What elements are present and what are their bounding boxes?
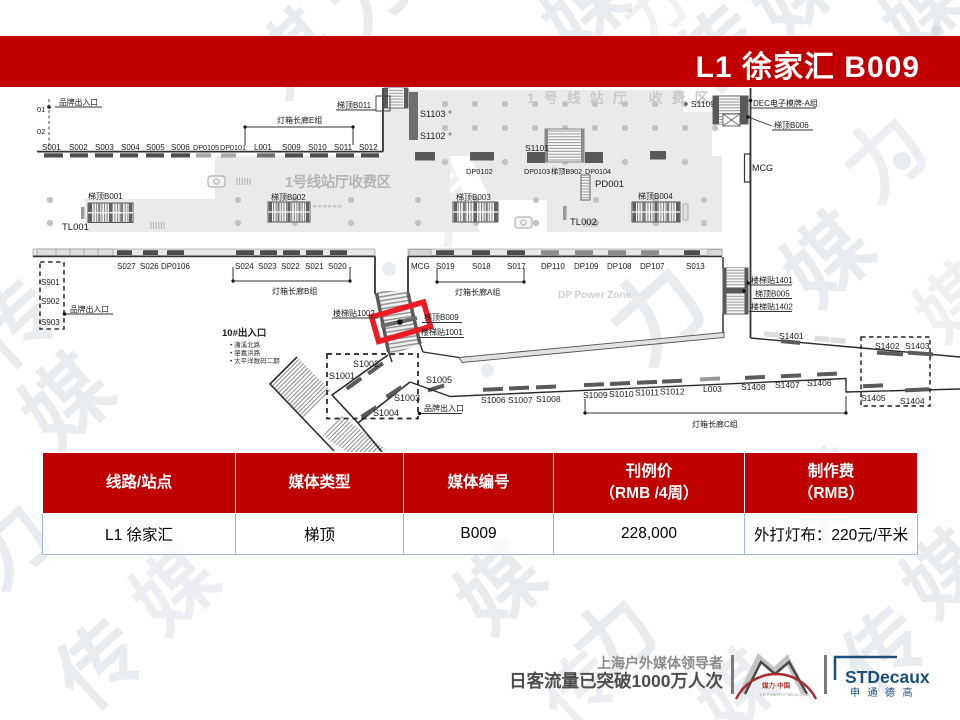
svg-text:• 肇嘉浜路: • 肇嘉浜路 (230, 348, 261, 357)
svg-text:S009: S009 (282, 143, 301, 152)
svg-text:楼梯贴1002: 楼梯贴1002 (333, 308, 375, 318)
svg-text:DP108: DP108 (607, 262, 632, 271)
svg-text:S1103: S1103 (420, 109, 445, 119)
svg-text:梯顶B011: 梯顶B011 (337, 100, 372, 110)
svg-text:L001: L001 (254, 143, 272, 152)
svg-text:02: 02 (37, 127, 45, 136)
svg-text:品牌出入口: 品牌出入口 (70, 304, 109, 314)
svg-text:S1408: S1408 (741, 382, 766, 392)
svg-text:S013: S013 (686, 262, 705, 271)
svg-text:10#出入口: 10#出入口 (222, 327, 266, 339)
svg-text:媒力·中国: 媒力·中国 (762, 681, 791, 690)
svg-text:S004: S004 (121, 143, 140, 152)
svg-text:灯箱长廊A组: 灯箱长廊A组 (455, 287, 500, 297)
svg-text:DP0101: DP0101 (220, 143, 246, 152)
svg-text:STDecaux: STDecaux (845, 667, 930, 687)
svg-text:S002: S002 (69, 143, 88, 152)
svg-text:THE POWER OF MEDIA CHINA: THE POWER OF MEDIA CHINA (759, 693, 810, 697)
svg-text:S005: S005 (146, 143, 165, 152)
svg-text:梯顶B006: 梯顶B006 (774, 120, 809, 130)
svg-text:S1007: S1007 (508, 395, 533, 405)
svg-text:楼梯贴1401: 楼梯贴1401 (751, 275, 793, 285)
svg-text:DP109: DP109 (574, 262, 599, 271)
svg-text:S1406: S1406 (807, 378, 832, 388)
svg-text:S1012: S1012 (660, 387, 685, 397)
svg-text:灯箱长廊B组: 灯箱长廊B组 (272, 286, 317, 296)
svg-text:DP0102: DP0102 (466, 167, 493, 176)
svg-text:S1011: S1011 (635, 388, 659, 398)
svg-text:TL001: TL001 (62, 222, 89, 233)
svg-text:梯顶B002: 梯顶B002 (271, 192, 306, 202)
svg-text:S001: S001 (42, 143, 61, 152)
svg-text:1号线站厅收费区: 1号线站厅收费区 (285, 173, 392, 191)
svg-text:S011: S011 (334, 143, 353, 152)
svg-text:DP0105: DP0105 (193, 143, 219, 152)
svg-text:S026: S026 (140, 262, 159, 271)
svg-text:品牌出入口: 品牌出入口 (424, 403, 464, 413)
svg-text:灯箱长廊E组: 灯箱长廊E组 (277, 115, 322, 125)
svg-text:S1002: S1002 (353, 359, 379, 369)
svg-text:S1401: S1401 (779, 331, 804, 341)
svg-text:品牌出入口: 品牌出入口 (59, 97, 98, 107)
svg-text:1号线站厅 收费区: 1号线站厅 收费区 (527, 90, 718, 106)
svg-text:DP Power Zone: DP Power Zone (558, 290, 632, 301)
svg-text:S1005: S1005 (426, 375, 452, 385)
svg-text:S020: S020 (328, 262, 347, 271)
svg-text:S1109: S1109 (691, 99, 715, 109)
svg-text:DP107: DP107 (640, 262, 665, 271)
svg-text:S901: S901 (41, 278, 60, 287)
svg-text:TL002: TL002 (570, 217, 597, 228)
svg-text:S024: S024 (235, 262, 254, 271)
svg-text:S1008: S1008 (536, 394, 561, 404)
svg-text:S017: S017 (507, 262, 526, 271)
svg-text:楼梯贴1001: 楼梯贴1001 (421, 327, 463, 337)
svg-text:S1010: S1010 (609, 389, 634, 399)
svg-text:梯顶B902: 梯顶B902 (551, 167, 582, 176)
svg-text:S1102: S1102 (420, 131, 445, 141)
svg-text:S1009: S1009 (583, 390, 608, 400)
svg-text:S1101: S1101 (525, 143, 549, 153)
svg-text:PD001: PD001 (595, 179, 624, 190)
svg-text:DP0103: DP0103 (524, 167, 550, 176)
svg-text:L003: L003 (703, 384, 722, 394)
svg-text:S1004: S1004 (373, 408, 399, 418)
svg-text:S1404: S1404 (900, 396, 925, 406)
svg-text:S1407: S1407 (775, 380, 800, 390)
svg-text:S027: S027 (117, 262, 136, 271)
svg-text:MCG: MCG (752, 163, 773, 173)
svg-text:• 太平洋数码二期: • 太平洋数码二期 (230, 356, 280, 365)
svg-text:梯顶B009: 梯顶B009 (424, 312, 459, 322)
svg-text:S1402: S1402 (875, 341, 900, 351)
svg-text:S003: S003 (95, 143, 114, 152)
svg-text:S1003: S1003 (394, 393, 420, 403)
svg-text:S006: S006 (171, 143, 190, 152)
svg-text:申通德高: 申通德高 (850, 686, 920, 699)
svg-text:S023: S023 (258, 262, 277, 271)
svg-text:梯顶B004: 梯顶B004 (638, 191, 673, 201)
svg-text:• 漕溪北路: • 漕溪北路 (230, 340, 261, 349)
svg-text:DP110: DP110 (541, 262, 565, 271)
svg-text:DP0106: DP0106 (161, 262, 190, 271)
svg-text:S010: S010 (308, 143, 327, 152)
svg-text:楼梯贴1402: 楼梯贴1402 (751, 302, 793, 312)
svg-text:S1006: S1006 (481, 395, 506, 405)
svg-text:S012: S012 (359, 143, 378, 152)
svg-text:S1403: S1403 (905, 341, 930, 351)
svg-text:S019: S019 (436, 262, 455, 271)
svg-text:S1405: S1405 (861, 393, 886, 403)
svg-text:S021: S021 (305, 262, 324, 271)
svg-text:DEC电子模牌-A组: DEC电子模牌-A组 (753, 98, 818, 108)
svg-text:梯顶B001: 梯顶B001 (88, 191, 123, 201)
svg-text:S902: S902 (41, 297, 60, 306)
svg-text:梯顶B003: 梯顶B003 (456, 192, 491, 202)
svg-text:S018: S018 (472, 262, 491, 271)
svg-text:MCG: MCG (411, 262, 430, 271)
svg-text:S1001: S1001 (329, 371, 355, 381)
svg-text:梯顶B005: 梯顶B005 (755, 289, 790, 299)
svg-text:灯箱长廊C组: 灯箱长廊C组 (692, 419, 738, 429)
svg-text:S903: S903 (41, 318, 60, 327)
svg-text:S022: S022 (281, 262, 300, 271)
svg-text:01: 01 (37, 105, 45, 114)
